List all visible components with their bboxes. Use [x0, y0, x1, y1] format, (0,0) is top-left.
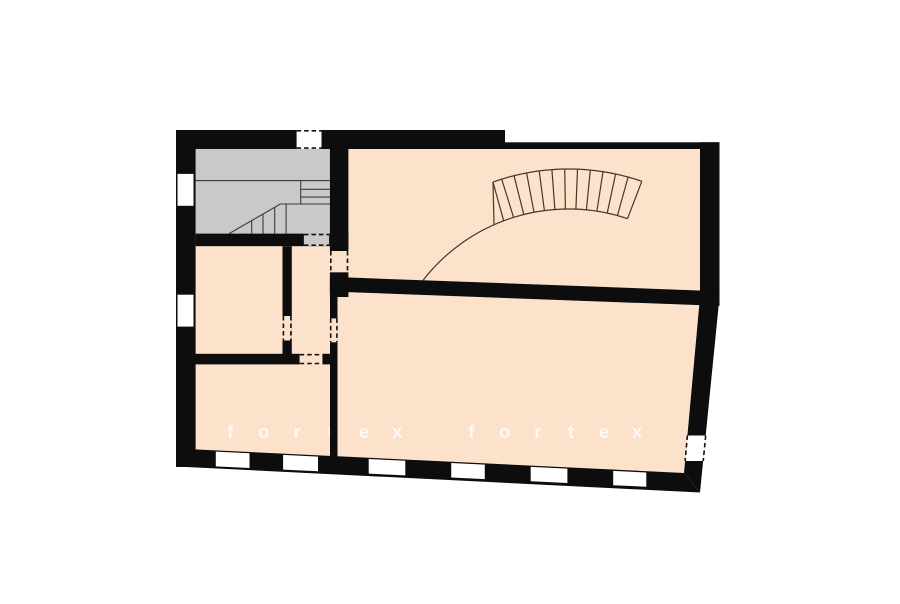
- svg-text:f: f: [227, 421, 234, 442]
- svg-text:f: f: [468, 421, 475, 442]
- svg-text:o: o: [499, 421, 510, 442]
- svg-text:r: r: [293, 421, 300, 442]
- svg-text:o: o: [258, 421, 269, 442]
- svg-text:r: r: [534, 421, 541, 442]
- svg-text:t: t: [568, 421, 574, 442]
- svg-text:x: x: [632, 421, 643, 442]
- svg-text:e: e: [359, 421, 369, 442]
- svg-text:x: x: [392, 421, 403, 442]
- svg-text:e: e: [599, 421, 609, 442]
